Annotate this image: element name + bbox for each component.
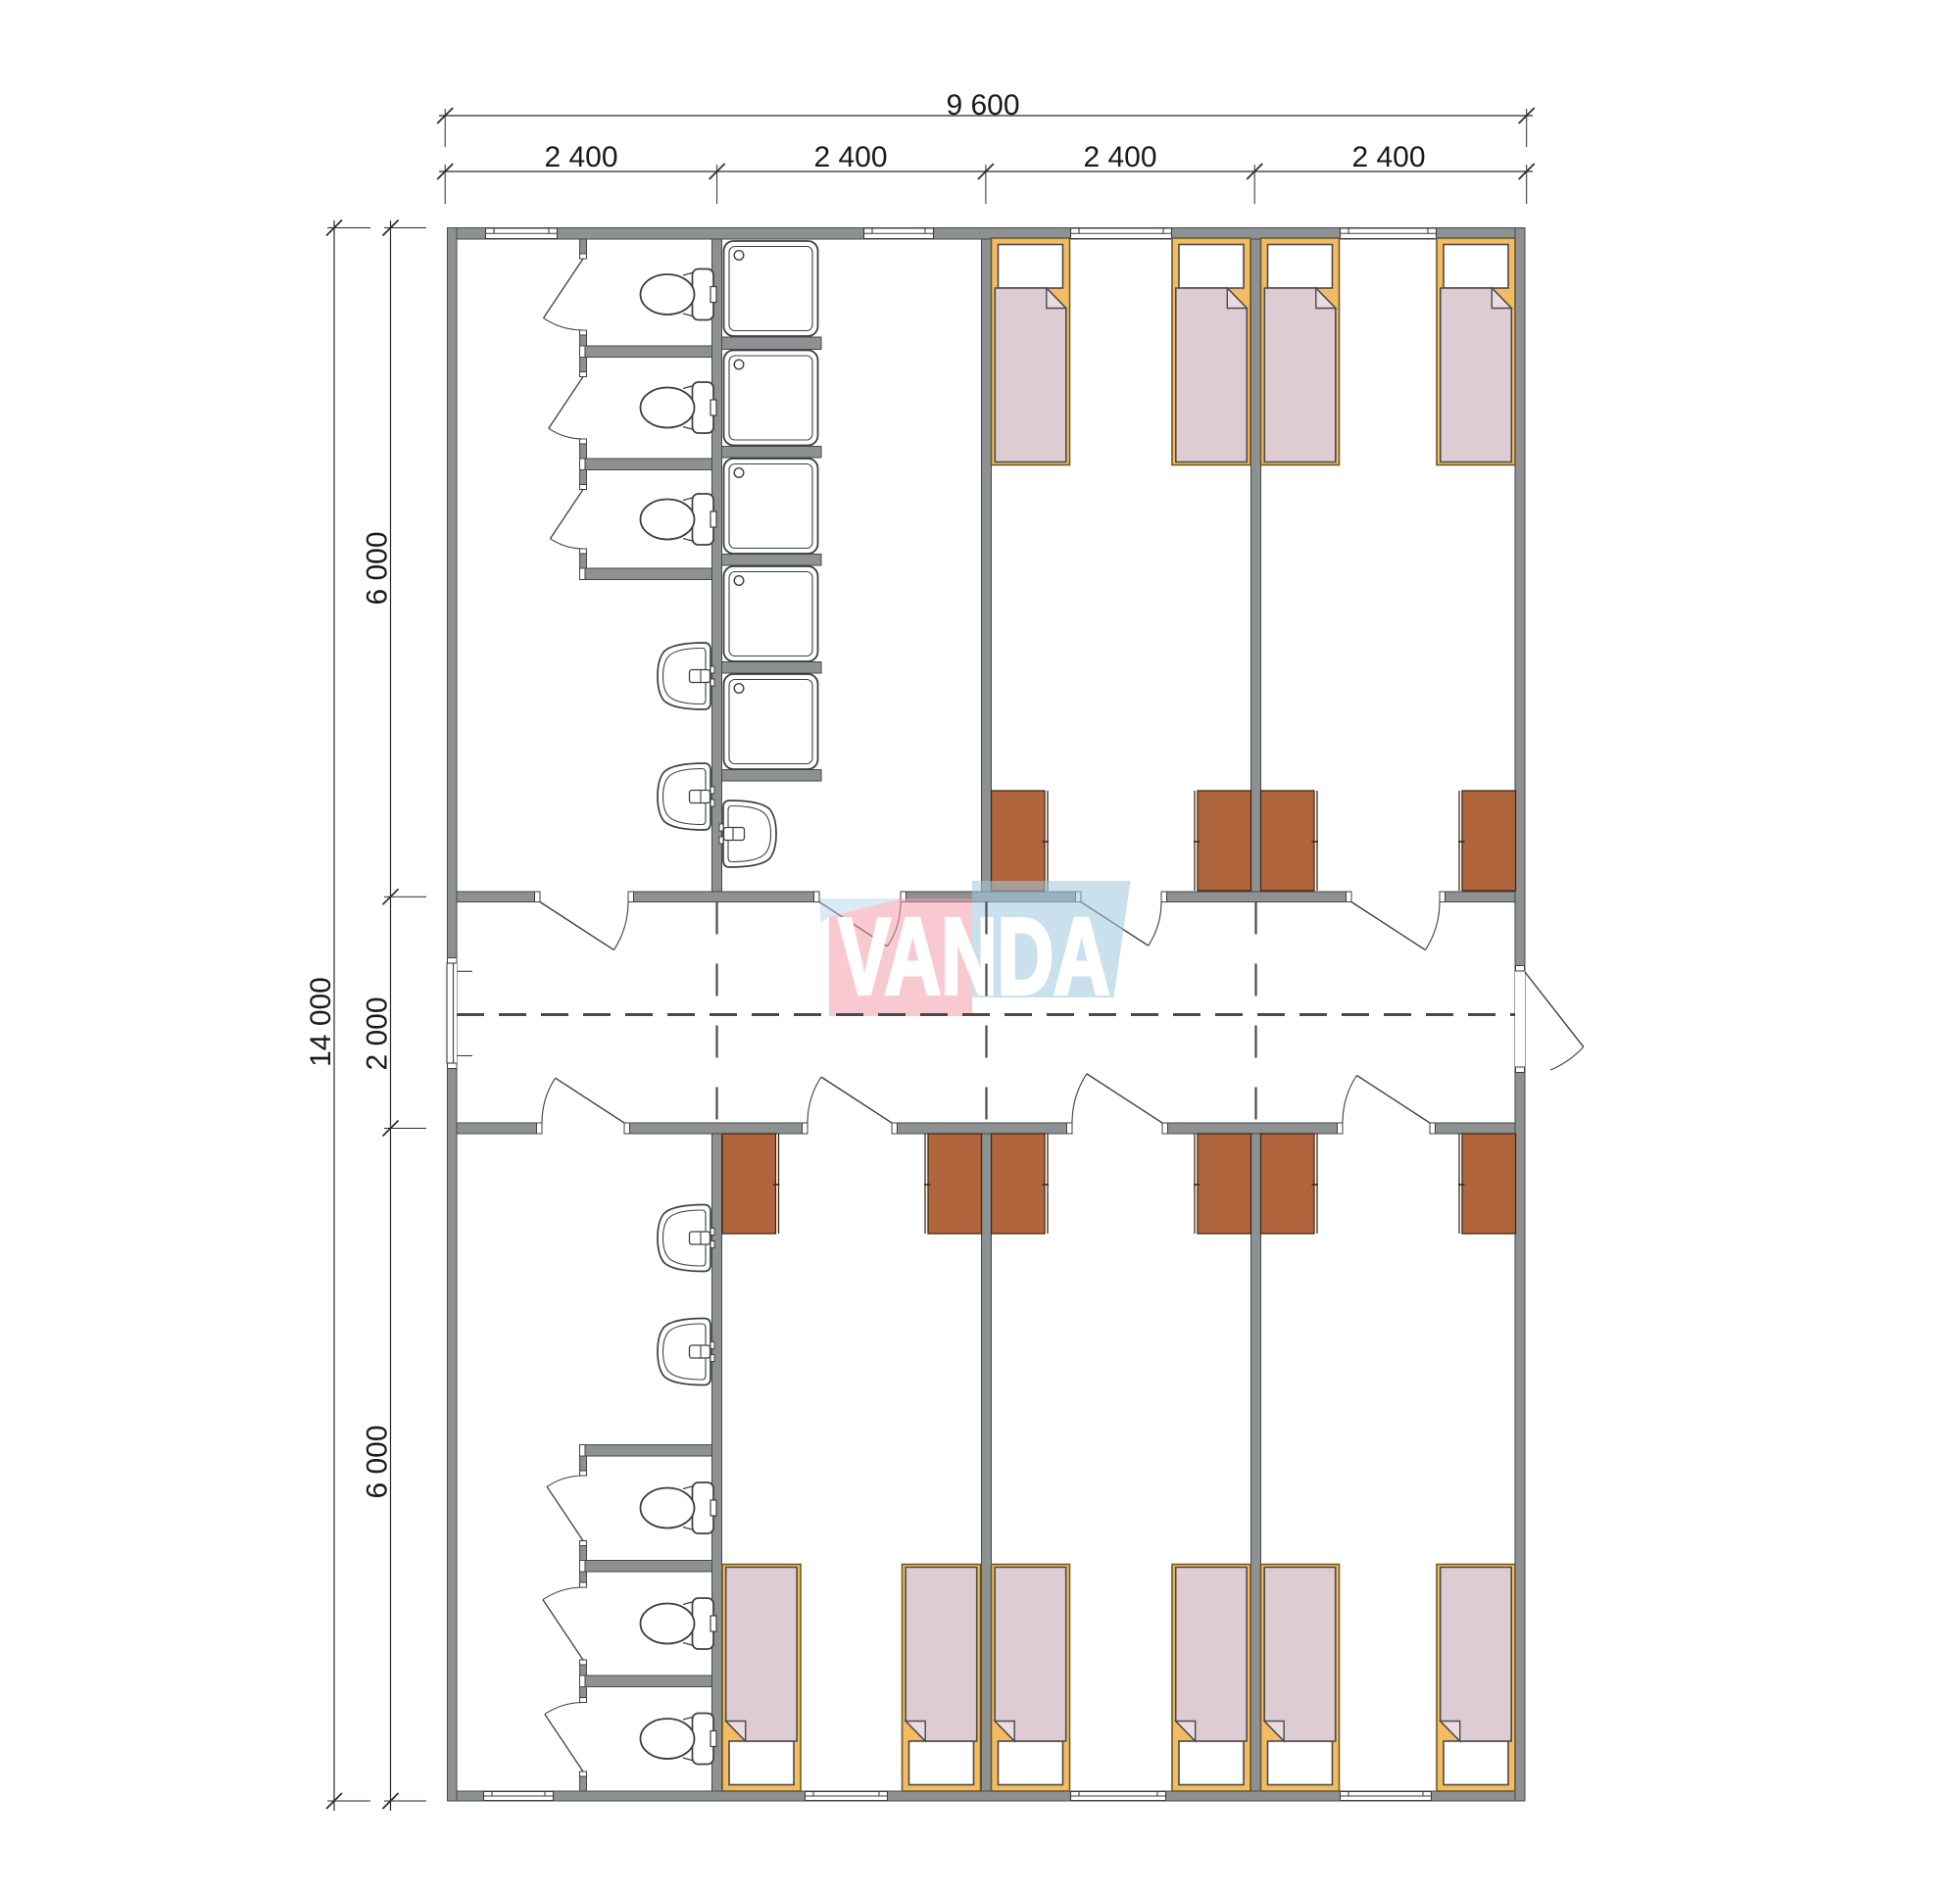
svg-text:2 400: 2 400 [544,141,617,173]
svg-text:2 400: 2 400 [1083,141,1156,173]
svg-text:6 000: 6 000 [362,1425,394,1498]
svg-text:2 400: 2 400 [813,141,887,173]
svg-text:14 000: 14 000 [305,977,337,1067]
svg-text:6 000: 6 000 [362,531,394,605]
svg-text:9 600: 9 600 [946,89,1019,121]
svg-text:2 000: 2 000 [362,996,394,1070]
svg-text:2 400: 2 400 [1351,141,1425,173]
svg-text:VANDA: VANDA [839,897,1110,1017]
